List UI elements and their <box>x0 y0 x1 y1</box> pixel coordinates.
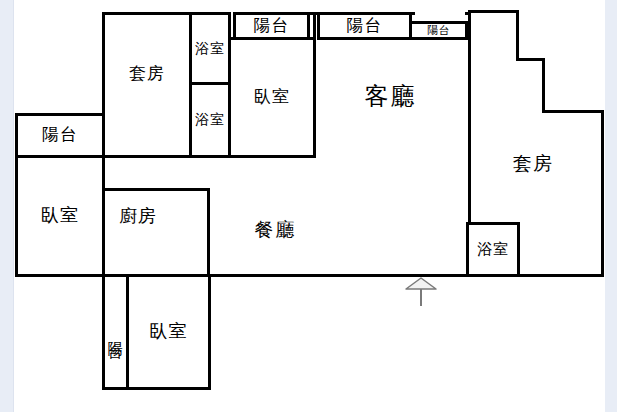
room-balcony-top-1: 陽台 <box>233 12 310 40</box>
room-suite-top-left: 套房 <box>102 12 192 158</box>
room-label-balcony-left: 陽台 <box>42 126 78 145</box>
room-bathroom-upper: 浴室 <box>189 12 231 85</box>
room-label-bedroom-left: 臥室 <box>41 206 79 226</box>
room-label-dining: 餐廳 <box>233 216 318 244</box>
floor-plan-page: 客廳 套房 浴室 浴室 陽台 臥室 陽台 <box>0 0 617 412</box>
room-label-living: 客廳 <box>365 83 417 109</box>
room-label-balcony-top-2: 陽台 <box>347 17 383 36</box>
floor-plan: 客廳 套房 浴室 浴室 陽台 臥室 陽台 <box>0 0 617 412</box>
room-bathroom-right: 浴室 <box>466 222 520 277</box>
room-label-bathroom-upper: 浴室 <box>195 41 225 56</box>
entrance-arrow-icon <box>406 278 436 306</box>
room-label-suite-top-left: 套房 <box>129 65 165 84</box>
wall-segment-bottom <box>207 274 316 277</box>
room-balcony-left: 陽台 <box>15 113 105 158</box>
room-label-balcony-top-1: 陽台 <box>254 17 290 36</box>
room-label-bathroom-right: 浴室 <box>477 241 509 258</box>
room-kitchen: 廚房 <box>102 188 210 277</box>
room-bedroom-left: 臥室 <box>15 155 105 277</box>
room-living: 客廳 <box>313 12 471 277</box>
room-balcony-top-2: 陽台 <box>317 12 412 40</box>
room-label-suite-right: 套房 <box>500 150 566 178</box>
room-label-balcony-bottom: 陽台 <box>108 330 123 334</box>
room-balcony-top-small: 陽台 <box>409 21 468 40</box>
wall-segment-kitchen-left <box>102 155 105 191</box>
room-bathroom-lower: 浴室 <box>189 82 231 158</box>
room-label-bathroom-lower: 浴室 <box>195 112 225 127</box>
room-label-bedroom-top: 臥室 <box>254 88 290 107</box>
wall-gap-mask <box>415 11 465 20</box>
room-label-kitchen: 廚房 <box>119 207 157 227</box>
room-bedroom-top: 臥室 <box>228 37 316 158</box>
room-balcony-bottom: 陽台 <box>102 274 129 390</box>
room-bedroom-bottom: 臥室 <box>126 274 211 390</box>
room-label-balcony-top-small: 陽台 <box>428 24 450 36</box>
room-label-bedroom-bottom: 臥室 <box>150 322 188 342</box>
wall-segment-living-left <box>313 12 316 40</box>
